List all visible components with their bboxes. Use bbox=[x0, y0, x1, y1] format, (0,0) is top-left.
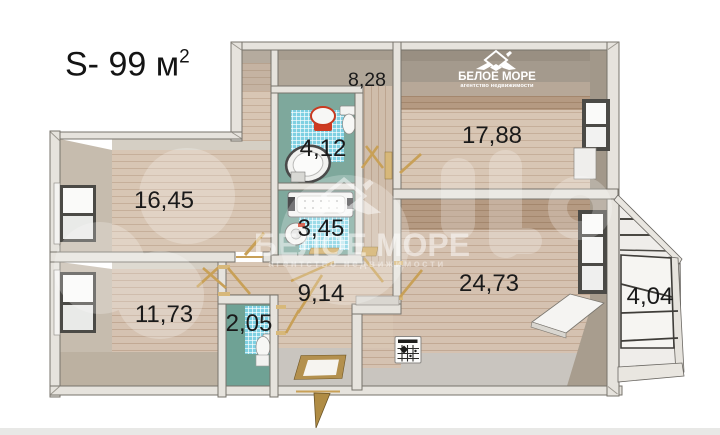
svg-text:9,14: 9,14 bbox=[298, 280, 345, 307]
svg-text:БЕЛОЕ МОРЕ: БЕЛОЕ МОРЕ bbox=[458, 71, 536, 83]
svg-text:8,28: 8,28 bbox=[348, 69, 386, 91]
svg-text:16,45: 16,45 bbox=[134, 187, 194, 214]
svg-text:агентство недвижимости: агентство недвижимости bbox=[268, 259, 446, 270]
svg-text:S- 99 м2: S- 99 м2 bbox=[65, 46, 190, 84]
svg-text:24,73: 24,73 bbox=[459, 270, 519, 297]
svg-text:2,05: 2,05 bbox=[226, 310, 273, 337]
svg-text:4,04: 4,04 bbox=[627, 283, 674, 310]
svg-text:17,88: 17,88 bbox=[462, 122, 522, 149]
svg-text:3,45: 3,45 bbox=[298, 215, 345, 242]
svg-text:4,12: 4,12 bbox=[300, 135, 347, 162]
svg-text:БЕЛОЕ МОРЕ: БЕЛОЕ МОРЕ bbox=[254, 227, 470, 263]
svg-text:11,73: 11,73 bbox=[135, 301, 193, 328]
svg-text:агентство недвижимости: агентство недвижимости bbox=[460, 83, 534, 89]
